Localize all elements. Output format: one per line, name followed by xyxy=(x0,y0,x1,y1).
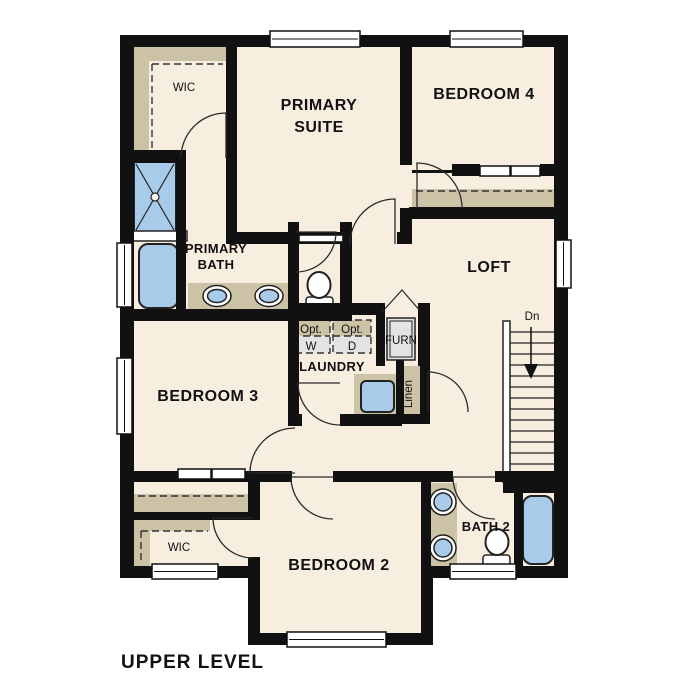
furnace-label: FURN xyxy=(385,335,417,347)
bath2-label: BATH 2 xyxy=(462,519,510,534)
primary-bath-window xyxy=(117,243,132,307)
laundry-sink xyxy=(361,381,394,412)
bedroom3-label: BEDROOM 3 xyxy=(157,388,258,405)
bedroom3-window xyxy=(117,358,132,434)
shower xyxy=(134,162,176,232)
primary-suite-window xyxy=(270,31,360,47)
primary-suite-label-line1: PRIMARY xyxy=(281,97,358,114)
primary-bath-label-line1: PRIMARY xyxy=(185,241,247,256)
opt-dryer-label-line1: Opt. xyxy=(341,324,363,336)
primary-bath-label-line2: BATH xyxy=(198,257,235,272)
bedroom4-closet-bypass-doors xyxy=(480,166,540,176)
laundry-label: LAUNDRY xyxy=(299,359,365,374)
floor-plan-drawing: WIC PRIMARY SUITE BEDROOM 4 PRIMARY BATH… xyxy=(0,0,687,687)
bath2-bathtub xyxy=(523,496,553,564)
primary-bathtub xyxy=(139,244,178,308)
opt-dryer-label-line2: D xyxy=(348,341,356,353)
bedroom2-label: BEDROOM 2 xyxy=(288,557,389,574)
bedroom4-window xyxy=(450,31,523,47)
primary-suite-label-line2: SUITE xyxy=(294,119,344,136)
bath2-toilet xyxy=(483,529,510,567)
floor-plan: WIC PRIMARY SUITE BEDROOM 4 PRIMARY BATH… xyxy=(0,0,687,687)
loft-label: LOFT xyxy=(467,259,511,276)
bedroom3-closet-bypass-doors xyxy=(178,469,245,479)
wic-lower-label: WIC xyxy=(168,542,190,554)
bedroom4-label: BEDROOM 4 xyxy=(433,86,534,103)
bedroom2-bump-floor xyxy=(260,566,421,633)
page-title: UPPER LEVEL xyxy=(121,652,264,673)
opt-washer-label-line2: W xyxy=(306,341,317,353)
bedroom2-window xyxy=(287,632,386,647)
loft-window xyxy=(556,240,571,288)
bath2-window xyxy=(450,564,516,579)
wic-upper-label: WIC xyxy=(173,82,195,94)
opt-washer-label-line1: Opt. xyxy=(300,324,322,336)
wic-lower-window xyxy=(152,564,218,579)
stairs-dn-label: Dn xyxy=(525,311,540,323)
linen-label: Linen xyxy=(403,380,415,408)
